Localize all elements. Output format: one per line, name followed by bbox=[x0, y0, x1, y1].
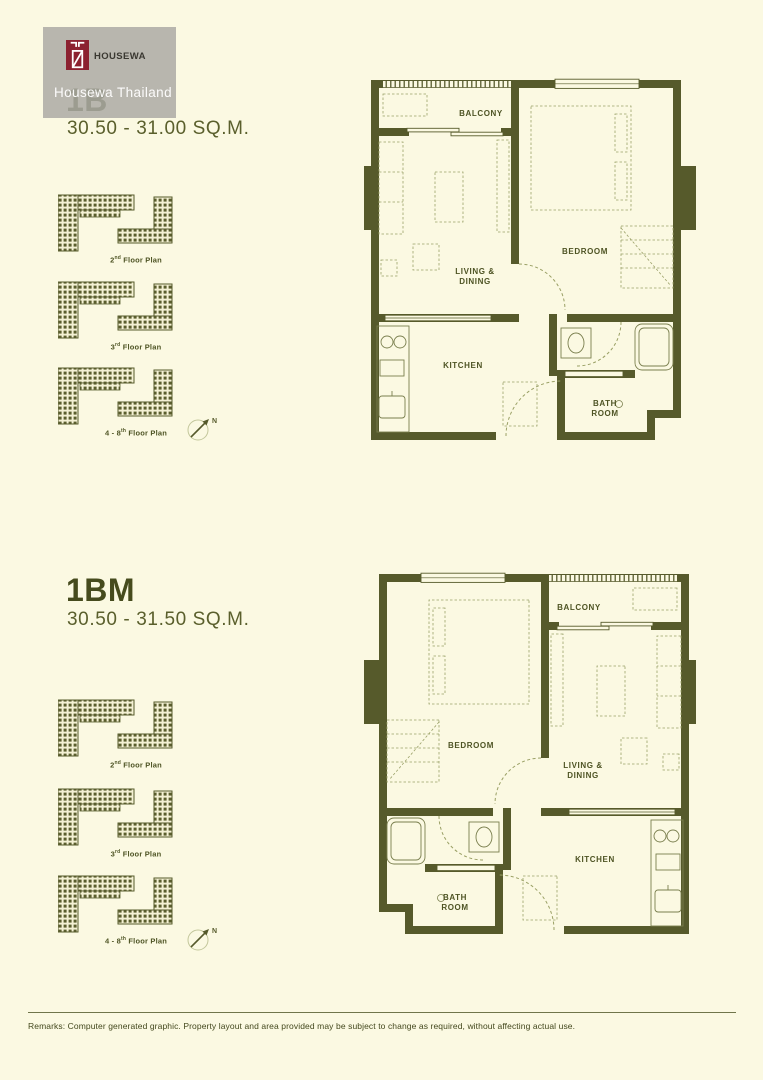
floor-plan-1bm: BALCONY BEDROOM LIVING & DINING KITCHEN … bbox=[363, 570, 697, 944]
room-label-kitchen: KITCHEN bbox=[575, 855, 615, 864]
room-label-bath: BATH bbox=[593, 399, 617, 408]
keyplan-2nd-floor: 2nd Floor Plan bbox=[58, 698, 182, 774]
floor-plan-1b: BALCONY BEDROOM LIVING & DINING KITCHEN … bbox=[363, 76, 697, 450]
keyplan-label: 4 - 8th Floor Plan bbox=[90, 428, 182, 438]
keyplan-drawing bbox=[58, 698, 182, 758]
keyplan-label: 4 - 8th Floor Plan bbox=[90, 936, 182, 946]
room-label-bath: BATH bbox=[443, 893, 467, 902]
room-label-bath2: ROOM bbox=[591, 409, 618, 418]
room-label-dining: DINING bbox=[567, 771, 599, 780]
compass-icon: N bbox=[184, 408, 222, 446]
brochure-page: 1B 30.50 - 31.00 SQ.M. HOUSEWA Housewa T… bbox=[0, 0, 763, 1080]
room-label-kitchen: KITCHEN bbox=[443, 361, 483, 370]
keyplan-drawing bbox=[58, 366, 182, 426]
keyplan-label: 3rd Floor Plan bbox=[90, 849, 182, 859]
room-label-living: LIVING & bbox=[455, 267, 494, 276]
keyplan-label: 2nd Floor Plan bbox=[90, 760, 182, 770]
room-label-bath2: ROOM bbox=[441, 903, 468, 912]
watermark-caption: Housewa Thailand bbox=[54, 85, 172, 100]
keyplan-drawing bbox=[58, 280, 182, 340]
housewa-logo-icon bbox=[66, 40, 89, 70]
keyplan-3rd-floor: 3rd Floor Plan bbox=[58, 787, 182, 863]
footer-remarks: Remarks: Computer generated graphic. Pro… bbox=[28, 1021, 575, 1031]
svg-text:N: N bbox=[212, 418, 217, 425]
room-label-bedroom: BEDROOM bbox=[448, 741, 494, 750]
room-label-dining: DINING bbox=[459, 277, 491, 286]
room-label-bedroom: BEDROOM bbox=[562, 247, 608, 256]
housewa-brand-text: HOUSEWA bbox=[94, 51, 146, 62]
keyplan-3rd-floor: 3rd Floor Plan bbox=[58, 280, 182, 356]
housewa-watermark: HOUSEWA Housewa Thailand bbox=[43, 27, 176, 118]
compass-icon: N bbox=[184, 918, 222, 956]
room-label-living: LIVING & bbox=[563, 761, 602, 770]
unit-1bm-area: 30.50 - 31.50 SQ.M. bbox=[67, 610, 250, 629]
room-label-balcony: BALCONY bbox=[459, 109, 503, 118]
keyplan-label: 3rd Floor Plan bbox=[90, 342, 182, 352]
footer-divider bbox=[28, 1012, 736, 1013]
keyplan-label: 2nd Floor Plan bbox=[90, 255, 182, 265]
keyplan-4-8th-floor: 4 - 8th Floor Plan bbox=[58, 366, 182, 442]
keyplan-2nd-floor: 2nd Floor Plan bbox=[58, 193, 182, 269]
unit-1b-area: 30.50 - 31.00 SQ.M. bbox=[67, 119, 250, 138]
keyplan-4-8th-floor: 4 - 8th Floor Plan bbox=[58, 874, 182, 950]
keyplan-drawing bbox=[58, 193, 182, 253]
room-label-balcony: BALCONY bbox=[557, 603, 601, 612]
svg-text:N: N bbox=[212, 928, 217, 935]
keyplan-drawing bbox=[58, 787, 182, 847]
keyplan-drawing bbox=[58, 874, 182, 934]
unit-1bm-code: 1BM bbox=[66, 574, 135, 606]
